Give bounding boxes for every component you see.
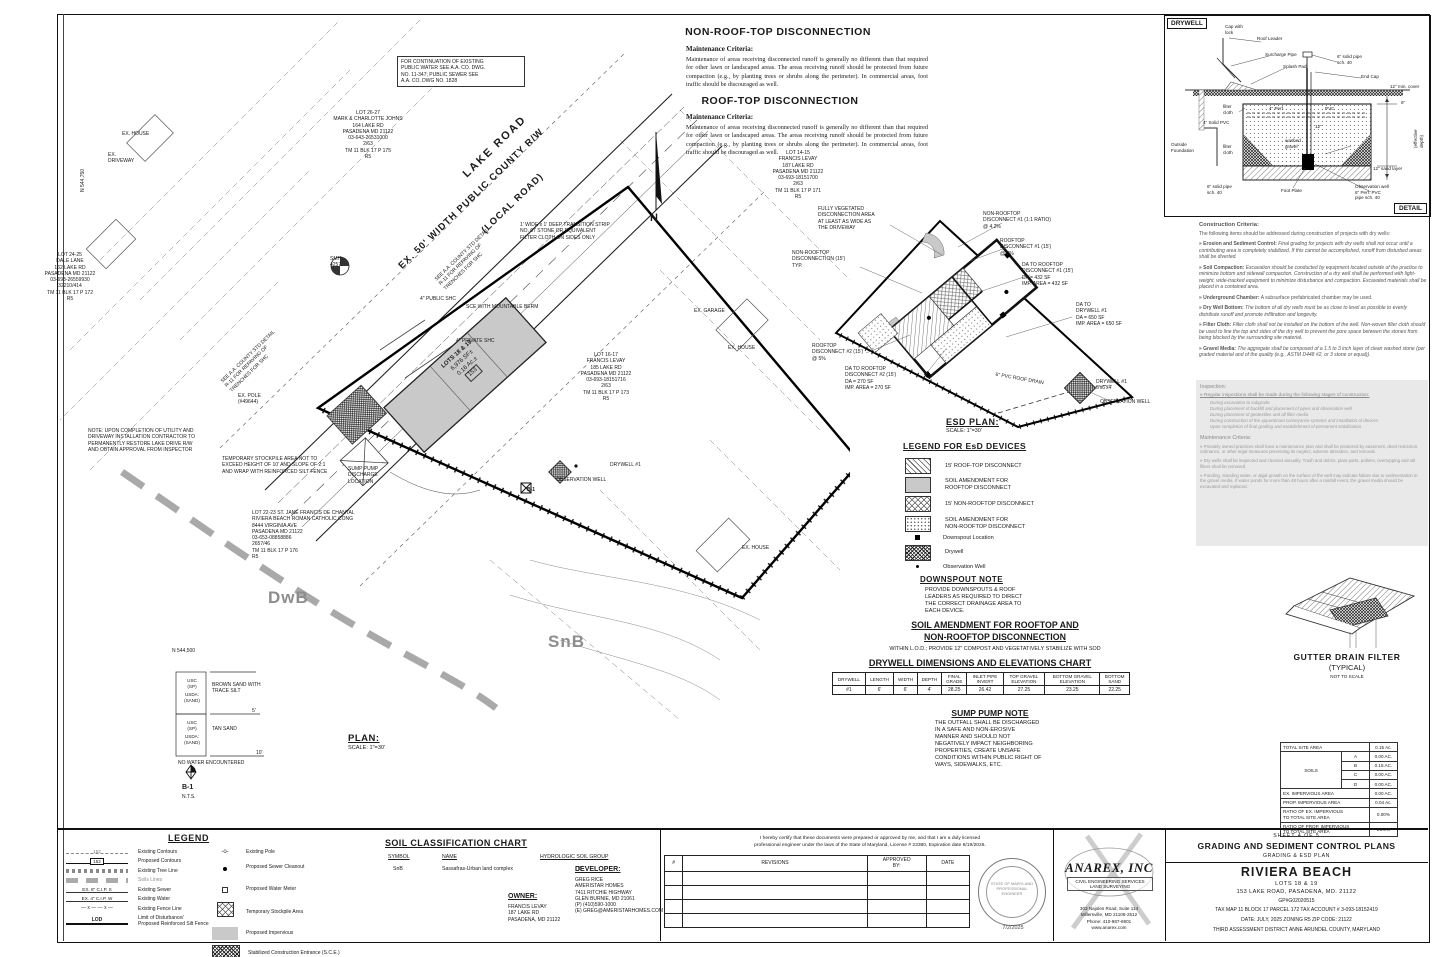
esd-callout: ROOFTOP DISCONNECT #1 (15') @ 2%	[1000, 238, 1051, 257]
soil-area: 0.00 AC.	[1369, 770, 1397, 779]
col-header: WIDTH	[894, 673, 918, 686]
sheet-number: SHEET 4 OF 5	[1165, 833, 1428, 839]
label-cap-with-lock: Cap with lock	[1225, 24, 1243, 35]
project-lots: LOTS 18 & 19	[1165, 881, 1428, 887]
esd-legend-row: SOIL AMENDMENT FOR NON-ROOFTOP DISCONNEC…	[905, 516, 1115, 532]
label-sand-layer: 12" sand layer	[1373, 166, 1402, 172]
site-row-label: RATIO OF EX. IMPERVIOUS TO TOTAL SITE AR…	[1281, 807, 1370, 822]
gutter-filter-note: NOT TO SCALE	[1262, 674, 1432, 679]
boring-no-water: NO WATER ENCOUNTERED	[178, 760, 244, 766]
maintenance-item: Privately owned practices shall have a m…	[1200, 444, 1424, 455]
esd-callout: NON-ROOFTOP DISCONNECTION (15') TYP.	[792, 250, 845, 269]
ex-garage-label: EX. GARAGE	[694, 308, 725, 314]
site-area-table: TOTAL SITE AREA0.15 Ac. SOILSA0.00 AC. B…	[1280, 742, 1398, 837]
soil-letter: A	[1342, 752, 1370, 761]
esd-legend-label: Downspout Location	[943, 535, 994, 542]
soils-line-swatch	[66, 878, 128, 883]
smh-label: SMH 4257	[330, 256, 341, 269]
developer-label: DEVELOPER:	[575, 866, 621, 873]
esd-callout: FULLY VEGETATED DISCONNECTION AREA AT LE…	[818, 206, 875, 231]
legend-row: Stabilized Construction Entrance (S.C.E.…	[212, 945, 362, 957]
sheet-rule	[1165, 862, 1428, 863]
rev-row	[665, 886, 970, 900]
esd-obswell-label: OBSERVATION WELL	[1100, 399, 1150, 405]
drywell-chart-table: DRYWELL LENGTH WIDTH DEPTH FINAL GRADE I…	[832, 672, 1130, 695]
legend-label: Temporary Stockpile Area	[246, 909, 303, 915]
rev-row	[665, 914, 970, 928]
criteria-item-name: Filter Cloth:	[1203, 322, 1231, 328]
esd-callout: DA TO ROOFTOP DISCONNECT #2 (15') DA = 2…	[845, 366, 896, 391]
esd-legend-title: LEGEND FOR EsD DEVICES	[903, 441, 1026, 451]
label-min-cover: 12" min. cover	[1390, 84, 1419, 90]
drywell-section-drawing	[1165, 16, 1430, 216]
lot-label: LOT 26-27 MARK & CHARLOTTE JOHNS 164 LAK…	[320, 110, 416, 160]
esd-legend: 15' ROOF-TOP DISCONNECT SOIL AMENDMENT F…	[905, 458, 1115, 574]
legend-label: Proposed Impervious	[246, 930, 293, 936]
esd-legend-label: SOIL AMENDMENT FOR NON-ROOFTOP DISCONNEC…	[945, 517, 1025, 531]
soil-amendment-title-1: SOIL AMENDMENT FOR ROOFTOP AND	[860, 620, 1130, 630]
boring-usda-1: USDA: (SAND)	[178, 692, 206, 703]
site-row-value: 0.15 Ac.	[1369, 743, 1397, 752]
developer-lines: GREG RICE AMERISTAR HOMES 7411 RITCHIE H…	[575, 877, 663, 915]
esd-legend-row: Drywell	[905, 545, 1115, 561]
soil-letter: B	[1342, 761, 1370, 770]
downspout-note-title: DOWNSPOUT NOTE	[920, 575, 1003, 584]
contour-swatch: 152	[66, 850, 128, 854]
soils-label: SOILS	[1281, 752, 1342, 789]
cell: 6'	[894, 686, 918, 695]
criteria-item-name: Dry Well Bottom:	[1203, 305, 1243, 311]
sump-pump-label: SUMP PUMP DISCHARGE LOCATION	[348, 466, 378, 485]
boring-usc-1: USC (SP)	[178, 678, 206, 689]
inspection-item: Upon completion of final grading and est…	[1210, 424, 1424, 430]
col-header: DRYWELL	[833, 673, 866, 686]
esd-legend-row: 15' NON-ROOFTOP DISCONNECT	[905, 496, 1115, 512]
transition-strip-label: 1' WIDE x 1' DEEP TRANSITION STRIP NO. 6…	[520, 222, 610, 241]
ex-house-label: EX. HOUSE	[122, 131, 149, 137]
criteria-item-name: Underground Chamber:	[1203, 295, 1259, 301]
label-washed-gravel: washed gravel	[1285, 138, 1301, 149]
boring-usc-2: USC (SP)	[178, 720, 206, 731]
sheet-subtitle: GRADING & ESD PLAN	[1165, 853, 1428, 859]
cell: 4'	[917, 686, 941, 695]
esd-callout: DA TO ROOFTOP DISCONNECT #1 (15') DA = 4…	[1022, 262, 1073, 287]
esd-legend-label: 15' ROOF-TOP DISCONNECT	[945, 463, 1022, 470]
sce-label: SCE WITH MOUNTABLE BERM	[466, 304, 538, 310]
cell: 22.25	[1100, 686, 1130, 695]
plan-scale: SCALE: 1"=30'	[348, 745, 385, 751]
gutter-filter-title: GUTTER DRAIN FILTER	[1262, 652, 1432, 662]
sheet-title-block: SHEET 4 OF 5 GRADING AND SEDIMENT CONTRO…	[1165, 828, 1428, 941]
firm-services: CIVIL ENGINEERING SERVICES LAND SURVEYIN…	[1067, 877, 1153, 891]
project-permit: GP#G02020515	[1165, 898, 1428, 904]
site-row-label: PROP. IMPERVIOUS AREA	[1281, 798, 1370, 807]
soil-amendment-body: WITHIN L.O.D.; PROVIDE 12" COMPOST AND V…	[830, 646, 1160, 652]
construction-criteria-intro: The following items should be addressed …	[1199, 231, 1427, 237]
soil-letter: C	[1342, 770, 1370, 779]
rev-col-header: DATE	[926, 856, 969, 872]
esd-legend-label: SOIL AMENDMENT FOR ROOFTOP DISCONNECT	[945, 478, 1011, 492]
legend-label: Existing Tree Line	[138, 868, 178, 874]
firm-address: 303 Najoles Road, Suite 114 Millersville…	[1053, 906, 1165, 932]
legend-row: Proposed Sewer Cleanout	[212, 858, 362, 876]
legend-label: Existing Contours	[138, 849, 177, 855]
legend-label: Proposed Sewer Cleanout	[246, 864, 304, 870]
legend-label: Proposed Contours	[138, 858, 181, 864]
rev-col-header: APPROVED BY:	[867, 856, 926, 872]
rev-col-header: REVISIONS	[683, 856, 867, 872]
ex-driveway-label: EX. DRIVEWAY	[108, 152, 134, 165]
downspout-note-body: PROVIDE DOWNSPOUTS & ROOF LEADERS AS REQ…	[925, 587, 1022, 615]
esd-callout: NON-ROOFTOP DISCONNECT #1 (1:1 RATIO) @ …	[983, 211, 1051, 230]
criteria-item: Erosion and Sediment Control: Final grad…	[1199, 241, 1427, 261]
cell: 23.25	[1045, 686, 1100, 695]
cell: 26.42	[967, 686, 1003, 695]
ex-house-label: EX. HOUSE	[742, 545, 769, 551]
legend-right-column: -o-Existing Pole Proposed Sewer Cleanout…	[212, 849, 362, 957]
criteria-item: Filter Cloth: Filter cloth shall not be …	[1199, 322, 1427, 342]
site-row-label: TOTAL SITE AREA	[1281, 743, 1370, 752]
project-district: THIRD ASSESSMENT DISTRICT ANNE ARUNDEL C…	[1165, 927, 1428, 933]
esd-legend-row: 15' ROOF-TOP DISCONNECT	[905, 458, 1115, 474]
soil-chart-cell: Sassafras-Urban land complex	[442, 866, 513, 872]
label-pvc: PVC	[1325, 106, 1334, 112]
soil-area: 0.15 AC.	[1369, 761, 1397, 770]
drywell-detail-box: DRYWELL DETAIL	[1164, 15, 1431, 217]
soil-amendment-title-2: NON-ROOFTOP DISCONNECTION	[860, 632, 1130, 642]
legend-label: Existing Water	[138, 896, 170, 902]
label-foot-plate: Foot Plate	[1281, 188, 1302, 194]
lot-label: LOT 16-17 FRANCIS LEVAY 185 LAKE RD PASA…	[560, 352, 652, 402]
legend-label: Existing Pole	[246, 849, 275, 855]
legend-row: Proposed Water Meter	[212, 880, 362, 898]
label-six-in: 6"	[1401, 100, 1405, 106]
legend-label: Proposed Water Meter	[246, 886, 296, 892]
esd-legend-row: SOIL AMENDMENT FOR ROOFTOP DISCONNECT	[905, 477, 1115, 493]
esd-legend-label: 15' NON-ROOFTOP DISCONNECT	[945, 501, 1034, 508]
label-solid-pipe-6: 6" solid pipe sch. 40	[1337, 54, 1362, 65]
coordinate-label: N 544,500	[172, 648, 195, 654]
label-effective-depth: (effective depth)	[1413, 129, 1424, 148]
project-address: 153 LAKE ROAD, PASADENA, MD. 21122	[1165, 889, 1428, 895]
esd-legend-row: Downspout Location	[905, 535, 1115, 542]
sump-pump-title: SUMP PUMP NOTE	[900, 708, 1080, 718]
coordinate-label: N 544,750	[80, 169, 86, 192]
soil-chart-cell: SnB	[393, 866, 403, 872]
criteria-item: Dry Well Bottom: The bottom of all dry w…	[1199, 305, 1427, 318]
criteria-gray-panel: Inspection: Regular inspections shall be…	[1196, 380, 1428, 546]
soil-chart-header: SYMBOL	[388, 854, 410, 860]
certification-text: I hereby certify that these documents we…	[690, 836, 1050, 849]
maintenance-item: Dry wells shall be inspected and cleaned…	[1200, 458, 1424, 469]
maintenance-title: Maintenance Criteria:	[1200, 435, 1424, 441]
criteria-item-text: A subsurface prefabricated chamber may b…	[1261, 295, 1373, 301]
firm-block: ANAREX, INC CIVIL ENGINEERING SERVICES L…	[1053, 828, 1165, 941]
rev-row	[665, 900, 970, 914]
soil-chart-header: HYDROLOGIC SOIL GROUP	[540, 854, 608, 860]
col-header: BOTTOM GRAVEL ELEVATION	[1045, 673, 1100, 686]
lot-label: LOT 14-15 FRANCIS LEVAY 187 LAKE RD PASA…	[752, 150, 844, 200]
legend-title: LEGEND	[168, 833, 209, 843]
label-solid-pipe-bottom: 6" solid pipe sch. 40	[1207, 184, 1232, 195]
sump-pump-body: THE OUTFALL SHALL BE DISCHARGED IN A SAF…	[935, 720, 1042, 769]
site-row-value: 0.00%	[1369, 807, 1397, 822]
esd-plan-title: ESD PLAN:	[946, 417, 999, 427]
plan-sheet: NON-ROOF-TOP DISCONNECTION Maintenance C…	[0, 0, 1436, 957]
drywell-detail-title: DRYWELL	[1167, 18, 1207, 29]
plan-title: PLAN:	[348, 733, 380, 744]
site-row-label: EX. IMPERVIOUS AREA	[1281, 789, 1370, 798]
cell: 28.25	[942, 686, 967, 695]
inspection-intro: Regular inspections shall be made during…	[1200, 393, 1424, 398]
private-shc-label: 4" PRIVATE SHC	[456, 338, 495, 344]
legend-row: Proposed Impervious	[212, 927, 362, 940]
ex-house-label: EX. HOUSE	[728, 345, 755, 351]
firm-name: ANAREX, INC	[1053, 860, 1165, 876]
observation-well-label: OBSERVATION WELL	[556, 477, 606, 483]
construction-criteria: Construction Criteria: The following ite…	[1199, 222, 1427, 359]
label-solid-pvc: 4" Solid PVC	[1203, 120, 1229, 126]
label-observation-well: Observation well 6" Perf. PVC pipe sch. …	[1355, 184, 1389, 201]
sewer-swatch: EX. 8" C.I.P. S	[66, 887, 128, 893]
rev-row	[665, 872, 970, 886]
gutter-filter-sketch	[1272, 570, 1422, 650]
label-perf-pvc: 4" Perf.	[1269, 106, 1284, 112]
cell: #1	[833, 686, 866, 695]
label-twelve-in: 12"	[1315, 124, 1322, 130]
lod-swatch: LOD	[66, 917, 128, 925]
label-end-cap: End Cap	[1361, 74, 1379, 80]
col-header: DEPTH	[917, 673, 941, 686]
criteria-item-name: Soil Compaction:	[1203, 265, 1244, 271]
boring-layer1: BROWN SAND WITH TRACE SILT	[212, 682, 261, 695]
criteria-item-text: Filter cloth shall not be installed on t…	[1199, 322, 1425, 341]
site-row-value: 0.00 AC.	[1369, 789, 1397, 798]
stockpile-note: TEMPORARY STOCKPILE AREA NOT TO EXCEED H…	[222, 456, 327, 475]
boring-nts: N.T.S.	[182, 794, 196, 800]
drywell-chart-data-row: #1 6' 6' 4' 28.25 26.42 27.25 23.25 22.2…	[833, 686, 1130, 695]
inspection-title: Inspection:	[1200, 384, 1424, 390]
drywell1-label: DRYWELL #1	[610, 462, 641, 468]
label-filter-cloth-side: filter cloth	[1223, 144, 1233, 155]
soil-label-dwb: DwB	[268, 588, 309, 608]
legend-label: Limit of Disturbance/ Proposed Reinforce…	[138, 915, 209, 928]
owner-label: OWNER:	[508, 893, 537, 900]
boring-layer2: TAN SAND	[212, 726, 237, 732]
label-surcharge-pipe: Surcharge Pipe	[1265, 52, 1297, 58]
criteria-item-name: Erosion and Sediment Control:	[1203, 241, 1277, 247]
col-header: BOTTOM SAND	[1100, 673, 1130, 686]
gutter-filter-subtitle: (TYPICAL)	[1262, 663, 1432, 672]
label-filter-cloth-top: filter cloth	[1223, 104, 1233, 115]
boring-depth-5: 5'	[252, 708, 256, 714]
north-arrow-label: N	[650, 212, 658, 224]
drywell-detail-label: DETAIL	[1394, 203, 1427, 214]
criteria-item: Underground Chamber: A subsurface prefab…	[1199, 295, 1427, 302]
col-header: INLET PIPE INVERT	[967, 673, 1003, 686]
esd-callout: DA TO DRYWELL #1 DA = 650 SF IMP. AREA =…	[1076, 302, 1122, 327]
legend-label: Existing Sewer	[138, 887, 171, 893]
owner-lines: FRANCIS LEVAY 187 LAKE RD PASADENA, MD 2…	[508, 904, 560, 923]
esd-callout: ROOFTOP DISCONNECT #2 (15') @ 5%	[812, 343, 863, 362]
esd-legend-label: Drywell	[945, 549, 963, 556]
restore-note: NOTE: UPON COMPLETION OF UTILITY AND DRI…	[88, 428, 195, 453]
soil-label-snb: SnB	[548, 632, 585, 652]
rev-col-header: #	[665, 856, 683, 872]
legend-row: Temporary Stockpile Area	[212, 902, 362, 922]
label-outside-foundation: Outside Foundation	[1171, 142, 1194, 153]
criteria-item: Gravel Media: The aggregate shall be com…	[1199, 346, 1427, 359]
public-shc-label: 4" PUBLIC SHC	[420, 296, 456, 302]
project-tax: TAX MAP 11 BLOCK 17 PARCEL 172 TAX ACCOU…	[1165, 907, 1428, 913]
project-name: RIVIERA BEACH	[1165, 865, 1428, 879]
col-header: LENGTH	[865, 673, 893, 686]
continuation-note: FOR CONTINUATION OF EXISTING PUBLIC WATE…	[397, 56, 525, 87]
boring-marker-label: B-1	[527, 487, 535, 493]
ex-pole-label: EX. POLE (#49644)	[238, 393, 261, 406]
project-date-zoning: DATE: JULY, 2025 ZONING R5 ZIP CODE: 211…	[1165, 917, 1428, 923]
legend-label: Existing Fence Line	[138, 906, 182, 912]
boring-usda-2: USDA: (SAND)	[178, 734, 206, 745]
construction-criteria-title: Construction Criteria:	[1199, 222, 1427, 228]
soil-area: 0.00 AC.	[1369, 752, 1397, 761]
lot-label: LOT 24-25 DALE LANE 162 LAKE RD PASADENA…	[22, 252, 118, 302]
cell: 27.25	[1003, 686, 1045, 695]
criteria-item: Soil Compaction: Excavation should be co…	[1199, 265, 1427, 291]
soil-letter: D	[1342, 780, 1370, 789]
esd-drywell-label: DRYWELL #1 6'x6'x4'	[1096, 379, 1127, 392]
label-roof-leader: Roof Leader	[1257, 36, 1282, 42]
soil-area: 0.00 AC.	[1369, 780, 1397, 789]
col-header: TOP GRAVEL ELEVATION	[1003, 673, 1045, 686]
soil-chart-title: SOIL CLASSIFICATION CHART	[385, 838, 527, 848]
criteria-item-name: Gravel Media:	[1203, 346, 1236, 352]
sheet-set-title: GRADING AND SEDIMENT CONTROL PLANS	[1165, 841, 1428, 851]
drywell-chart-title: DRYWELL DIMENSIONS AND ELEVATIONS CHART	[830, 658, 1130, 668]
engineer-seal: STATE OF MARYLAND PROFESSIONAL ENGINEER	[978, 858, 1046, 926]
boring-name: B-1	[182, 784, 193, 791]
soil-chart-header: NAME	[442, 854, 457, 860]
legend-label: Stabilized Construction Entrance (S.C.E.…	[248, 950, 340, 956]
seal-text: STATE OF MARYLAND PROFESSIONAL ENGINEER	[987, 881, 1037, 897]
revisions-table: # REVISIONS APPROVED BY: DATE	[664, 855, 970, 928]
esd-legend-row: Observation Well	[905, 564, 1115, 571]
col-header: FINAL GRADE	[942, 673, 967, 686]
seal-date: 7/2/2025	[985, 925, 1041, 931]
boring-depth-10: 10'	[256, 750, 263, 756]
site-row-value: 0.04 Ac.	[1369, 798, 1397, 807]
fence-swatch: — x — — x —	[66, 906, 128, 911]
treeline-swatch	[66, 869, 128, 873]
esd-plan-scale: SCALE: 1"=30'	[946, 428, 982, 434]
water-swatch: EX. 4" C.I.P. W	[66, 896, 128, 902]
esd-legend-label: Observation Well	[943, 564, 986, 571]
drywell-chart-header-row: DRYWELL LENGTH WIDTH DEPTH FINAL GRADE I…	[833, 673, 1130, 686]
cell: 6'	[865, 686, 893, 695]
prop-contour-swatch: 152	[90, 858, 104, 865]
label-splash-pad: Splash Pad	[1283, 64, 1307, 70]
church-lot-label: LOT 22-23 ST. JANE FRANCIS DE CHANTAL RI…	[252, 510, 355, 560]
maintenance-item: Ponding, standing water, or algal growth…	[1200, 473, 1424, 490]
legend-label: Soils Lines	[138, 877, 162, 883]
legend-row: -o-Existing Pole	[212, 849, 362, 855]
